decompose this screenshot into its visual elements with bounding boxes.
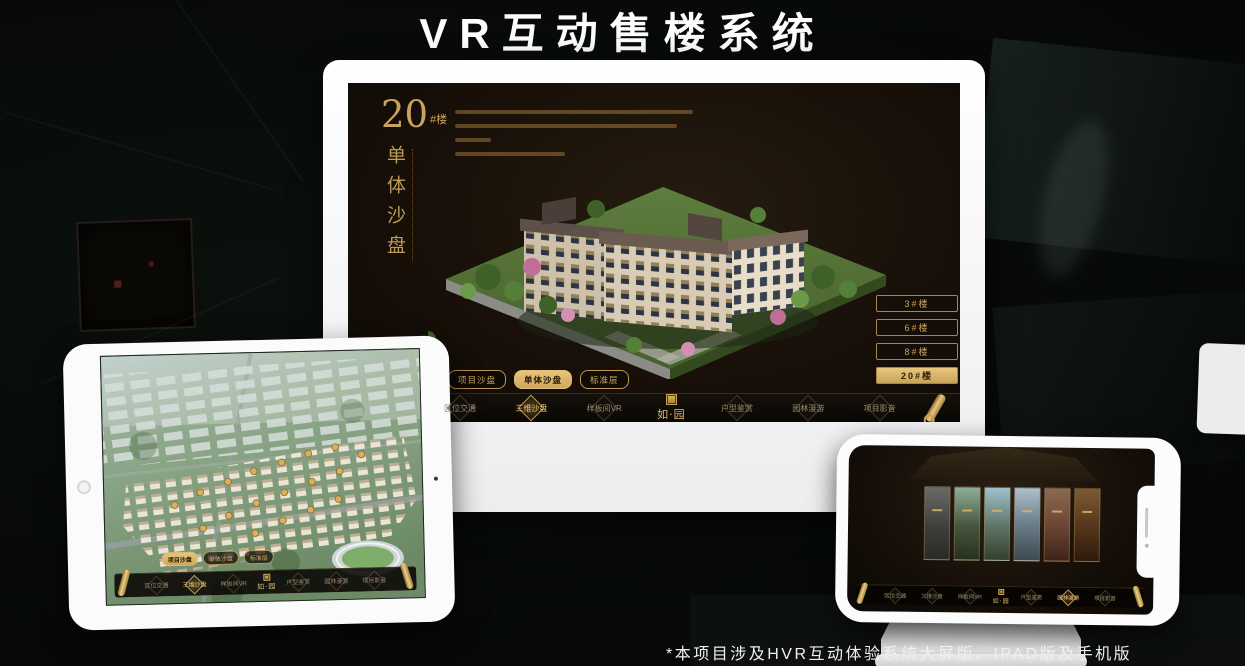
floor-button-8[interactable]: 8#楼 — [876, 343, 958, 360]
tab-single-sandbox[interactable]: 单体沙盘 — [203, 551, 239, 566]
scene-panel[interactable] — [1044, 487, 1071, 561]
brand-logo-text: 如·园 — [993, 595, 1010, 604]
tab-single-sandbox[interactable]: 单体沙盘 — [514, 370, 572, 389]
description-text-line — [455, 110, 693, 114]
seal-icon — [666, 394, 677, 405]
brand-logo-text: 如·园 — [257, 581, 276, 591]
tab-standard-floor[interactable]: 标准层 — [580, 370, 629, 389]
phone-main-nav: 区位交通 三维沙盘 样板间VR 如·园 户型鉴赏 园林漫游 项目影音 — [856, 584, 1144, 608]
nav-item-unit-plans[interactable]: 户型鉴赏 — [282, 575, 314, 589]
brand-logo: 如·园 — [657, 394, 686, 422]
scene-panel[interactable] — [1074, 488, 1101, 562]
nav-item-project-media[interactable]: 项目影音 — [1090, 592, 1120, 604]
floor-button-3[interactable]: 3#楼 — [876, 295, 958, 312]
scroll-icon[interactable] — [924, 393, 947, 422]
front-camera-icon — [1145, 544, 1149, 548]
nav-item-sandbox[interactable]: 三维沙盘 — [917, 589, 947, 601]
speaker-slit-icon — [1145, 508, 1148, 538]
page-title: VR互动售楼系统 — [0, 0, 1245, 61]
section-number: 20 — [381, 93, 428, 136]
sandbox-sub-tabs: 项目沙盘 单体沙盘 标准层 — [448, 370, 629, 389]
camera-dot-icon — [434, 477, 438, 481]
nav-item-sandbox[interactable]: 三维沙盘 — [511, 401, 551, 416]
brand-logo: 如·园 — [257, 573, 277, 591]
nav-item-garden-roam[interactable]: 园林漫游 — [320, 574, 352, 588]
nav-item-location[interactable]: 区位交通 — [440, 401, 480, 416]
nav-item-project-media[interactable]: 项目影音 — [358, 573, 390, 587]
ipad-screen: 项目沙盘 单体沙盘 标准层 区位交通 三维沙盘 样板间VR 如·园 户型鉴赏 园… — [100, 348, 426, 606]
scene-panel[interactable] — [1014, 487, 1041, 561]
floor-button-6[interactable]: 6#楼 — [876, 319, 958, 336]
nav-item-showroom-vr[interactable]: 样板间VR — [216, 576, 251, 590]
tab-project-sandbox[interactable]: 项目沙盘 — [448, 370, 506, 389]
building-3d-render[interactable] — [428, 149, 898, 379]
background-framed-artwork — [76, 218, 196, 332]
section-subtitle-vertical: 单体沙盘 — [382, 145, 409, 265]
brand-logo: 如·园 — [993, 588, 1010, 604]
nav-item-showroom-vr[interactable]: 样板间VR — [954, 590, 986, 602]
home-button[interactable] — [77, 480, 91, 494]
nav-item-garden-roam[interactable]: 园林漫游 — [788, 401, 828, 416]
nav-item-garden-roam[interactable]: 园林漫游 — [1053, 591, 1083, 603]
tab-project-sandbox[interactable]: 项目沙盘 — [162, 552, 198, 567]
footnote-text: *本项目涉及HVR互动体验系统大屏版、IPAD版及手机版 — [666, 640, 1132, 664]
seal-icon — [263, 573, 270, 580]
nav-item-sandbox[interactable]: 三维沙盘 — [178, 577, 210, 591]
nav-item-project-media[interactable]: 项目影音 — [860, 401, 900, 416]
scene-panel[interactable] — [924, 486, 951, 560]
background-screenshot-collage — [972, 38, 1245, 266]
section-unit: #楼 — [430, 111, 447, 127]
phone-notch — [1136, 486, 1156, 578]
background-map-road — [5, 111, 275, 190]
description-text-line — [455, 124, 677, 128]
seal-icon — [998, 588, 1004, 594]
brand-logo-text: 如·园 — [657, 406, 686, 422]
ipad-device: 项目沙盘 单体沙盘 标准层 区位交通 三维沙盘 样板间VR 如·园 户型鉴赏 园… — [63, 335, 456, 630]
floor-button-20[interactable]: 20#楼 — [876, 367, 958, 384]
background-river-image — [1027, 113, 1122, 282]
nav-item-location[interactable]: 区位交通 — [140, 578, 172, 592]
nav-item-unit-plans[interactable]: 户型鉴赏 — [1016, 591, 1046, 603]
nav-item-showroom-vr[interactable]: 样板间VR — [583, 401, 626, 416]
promo-canvas: VR互动售楼系统 20 #楼 单体沙盘 — [0, 0, 1245, 666]
scene-panel[interactable] — [984, 487, 1011, 561]
phone-screen: 区位交通 三维沙盘 样板间VR 如·园 户型鉴赏 园林漫游 项目影音 — [847, 445, 1155, 615]
nav-item-unit-plans[interactable]: 户型鉴赏 — [717, 401, 757, 416]
phone-device: 区位交通 三维沙盘 样板间VR 如·园 户型鉴赏 园林漫游 项目影音 — [835, 434, 1181, 626]
scene-panel[interactable] — [954, 486, 981, 560]
section-divider — [412, 149, 413, 261]
background-white-card-edge — [1196, 343, 1245, 435]
ipad-sandbox-sub-tabs: 项目沙盘 单体沙盘 标准层 — [162, 550, 274, 567]
nav-item-location[interactable]: 区位交通 — [880, 589, 910, 601]
tab-standard-floor[interactable]: 标准层 — [244, 550, 274, 565]
description-text-line — [455, 138, 491, 142]
